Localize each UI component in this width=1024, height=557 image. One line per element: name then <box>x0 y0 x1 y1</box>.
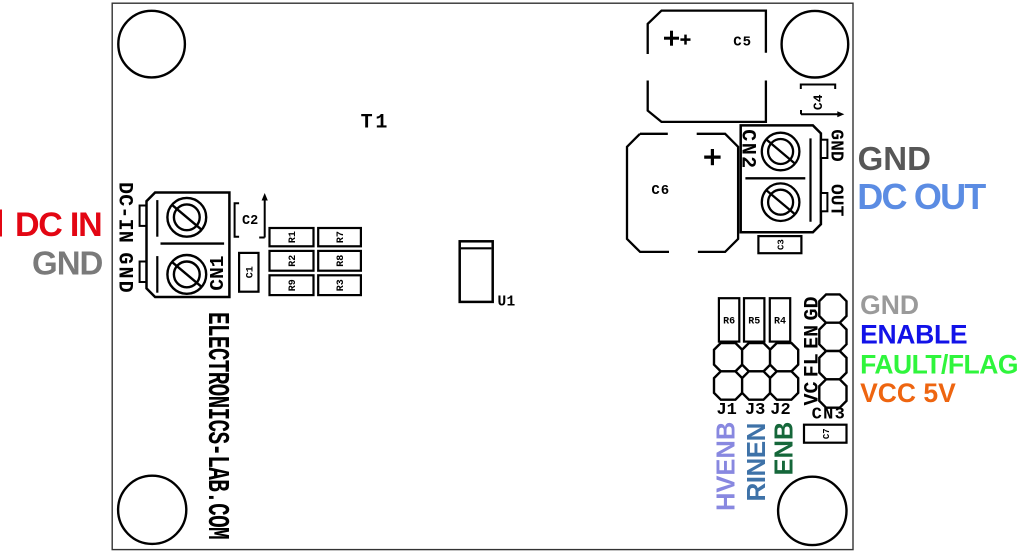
svg-text:C5: C5 <box>733 34 752 50</box>
svg-text:R1: R1 <box>288 231 299 243</box>
svg-text:R8: R8 <box>336 255 347 267</box>
svg-text:J2: J2 <box>770 401 790 420</box>
svg-text:FAULT/FLAG: FAULT/FLAG <box>860 350 1018 380</box>
svg-text:VC: VC <box>802 381 825 405</box>
svg-text:DC OUT: DC OUT <box>857 176 986 217</box>
svg-text:GD: GD <box>802 296 825 320</box>
svg-text:CN3: CN3 <box>812 406 847 425</box>
svg-text:GND: GND <box>858 140 931 177</box>
svg-text:R7: R7 <box>336 231 347 243</box>
svg-text:HVENB: HVENB <box>713 422 741 511</box>
svg-text:C1: C1 <box>245 266 256 278</box>
svg-text:GND: GND <box>32 244 103 281</box>
svg-text:ENB: ENB <box>771 422 799 476</box>
svg-text:VCC 5V: VCC 5V <box>860 378 956 408</box>
svg-text:OUT: OUT <box>825 184 845 217</box>
svg-text:DC IN: DC IN <box>15 206 102 244</box>
svg-text:EN: EN <box>802 325 825 349</box>
svg-text:C4: C4 <box>811 94 826 110</box>
svg-text:U1: U1 <box>498 294 516 310</box>
svg-text:R2: R2 <box>288 255 299 267</box>
svg-text:C6: C6 <box>651 183 670 199</box>
svg-text:GND: GND <box>825 129 845 162</box>
svg-text:FL: FL <box>802 353 825 377</box>
svg-text:R5: R5 <box>748 317 760 328</box>
svg-text:ENABLE: ENABLE <box>860 319 967 349</box>
svg-text:GND: GND <box>860 290 919 320</box>
svg-text:R4: R4 <box>774 317 786 328</box>
svg-text:R3: R3 <box>336 279 347 291</box>
svg-text:DC-IN: DC-IN <box>112 182 135 243</box>
svg-text:GND: GND <box>112 252 135 294</box>
svg-text:T1: T1 <box>361 111 391 134</box>
svg-text:CN2: CN2 <box>735 129 758 169</box>
svg-text:C2: C2 <box>242 214 258 229</box>
svg-text:R9: R9 <box>288 279 299 291</box>
svg-text:ELECTRONICS-LAB.COM: ELECTRONICS-LAB.COM <box>199 312 234 539</box>
svg-text:J3: J3 <box>745 401 765 420</box>
svg-text:RINEN: RINEN <box>741 423 771 501</box>
svg-text:J1: J1 <box>716 401 736 420</box>
svg-text:C3: C3 <box>777 239 787 250</box>
svg-text:C7: C7 <box>822 428 832 439</box>
svg-text:CN1: CN1 <box>207 255 229 290</box>
svg-text:R6: R6 <box>723 317 735 328</box>
